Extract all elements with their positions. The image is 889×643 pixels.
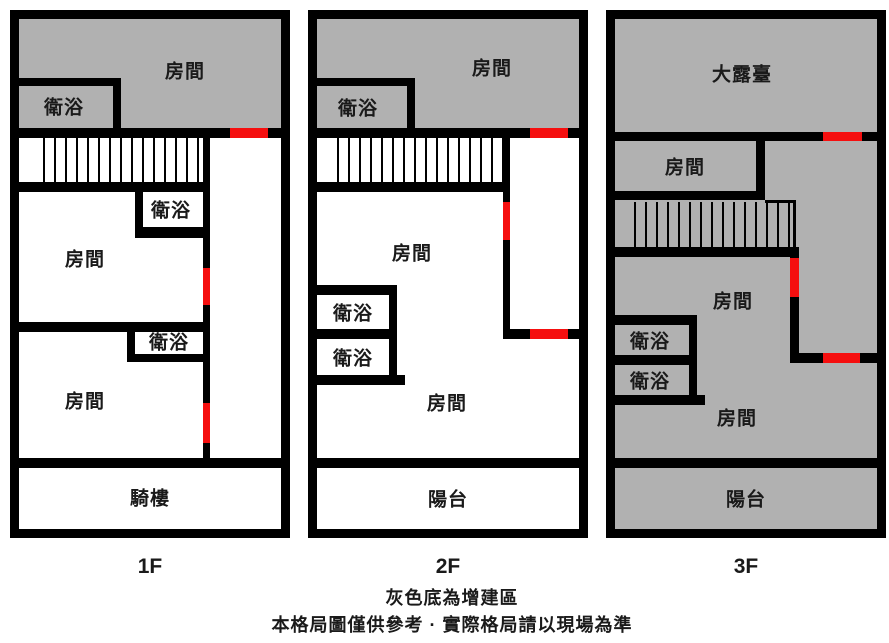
wall [606, 191, 765, 200]
door-marker [503, 202, 510, 240]
door-marker [790, 258, 799, 297]
wall [135, 227, 210, 238]
wall [615, 355, 697, 365]
wall [10, 529, 290, 538]
extension-area [615, 19, 877, 529]
floor-plan-1f: 房間 衛浴 衛浴 房間 衛浴 房間 騎樓 [10, 10, 290, 538]
door-marker [203, 403, 210, 443]
staircase [43, 138, 203, 182]
wall [317, 285, 397, 295]
room-label-bedroom: 房間 [472, 54, 512, 81]
wall [606, 458, 886, 468]
wall [606, 247, 799, 257]
wall [756, 132, 765, 200]
room-label-bedroom: 房間 [65, 387, 105, 414]
room-label-bath: 衛浴 [630, 367, 670, 394]
room-label-balcony: 陽台 [726, 485, 766, 512]
room-label-bath: 衛浴 [338, 94, 378, 121]
room-label-bedroom: 房間 [717, 404, 757, 431]
floor-plan-image: 房間 衛浴 衛浴 房間 衛浴 房間 騎樓 [0, 0, 889, 643]
wall [317, 329, 397, 339]
floor-plan-3f: 大露臺 房間 房間 衛浴 衛浴 房間 陽台 [606, 10, 886, 538]
wall [317, 78, 415, 86]
room-label-bedroom: 房間 [713, 287, 753, 314]
wall [606, 529, 886, 538]
floor-label-3f: 3F [734, 555, 759, 579]
room-label-bath: 衛浴 [44, 93, 84, 120]
door-marker [823, 132, 862, 141]
door-marker [203, 268, 210, 305]
legend-disclaimer: 本格局圖僅供參考 · 實際格局請以現場為準 [272, 611, 633, 637]
door-marker [530, 128, 568, 138]
wall [615, 315, 697, 325]
room-label-bath: 衛浴 [333, 299, 373, 326]
wall [308, 182, 510, 192]
wall [10, 182, 210, 192]
room-label-bedroom: 房間 [165, 57, 205, 84]
room-label-bath: 衛浴 [333, 344, 373, 371]
door-marker [823, 353, 860, 363]
wall [308, 458, 588, 468]
door-marker [230, 128, 268, 138]
door-marker [530, 329, 568, 339]
room-label-bath: 衛浴 [151, 196, 191, 223]
floor-label-2f: 2F [436, 555, 461, 579]
staircase [337, 138, 503, 182]
wall [19, 78, 121, 86]
wall [10, 10, 290, 19]
room-label-bath: 衛浴 [149, 328, 189, 355]
wall [407, 78, 415, 128]
floor-label-1f: 1F [138, 555, 163, 579]
wall [308, 529, 588, 538]
room-label-terrace: 大露臺 [712, 60, 772, 87]
floor-plan-2f: 房間 衛浴 房間 衛浴 衛浴 房間 陽台 [308, 10, 588, 538]
staircase [634, 202, 796, 247]
room-label-bedroom: 房間 [427, 389, 467, 416]
room-label-bath: 衛浴 [630, 327, 670, 354]
wall [10, 458, 290, 468]
wall [793, 202, 796, 247]
wall [689, 315, 697, 405]
legend-gray-note: 灰色底為增建區 [386, 584, 519, 610]
wall [389, 285, 397, 385]
wall [606, 10, 886, 19]
wall [308, 10, 588, 19]
room-label-balcony: 陽台 [428, 485, 468, 512]
room-label-bedroom: 房間 [665, 153, 705, 180]
wall [113, 78, 121, 128]
room-label-bedroom: 房間 [392, 239, 432, 266]
wall [127, 354, 210, 362]
room-label-bedroom: 房間 [65, 245, 105, 272]
room-label-arcade: 騎樓 [130, 484, 170, 511]
